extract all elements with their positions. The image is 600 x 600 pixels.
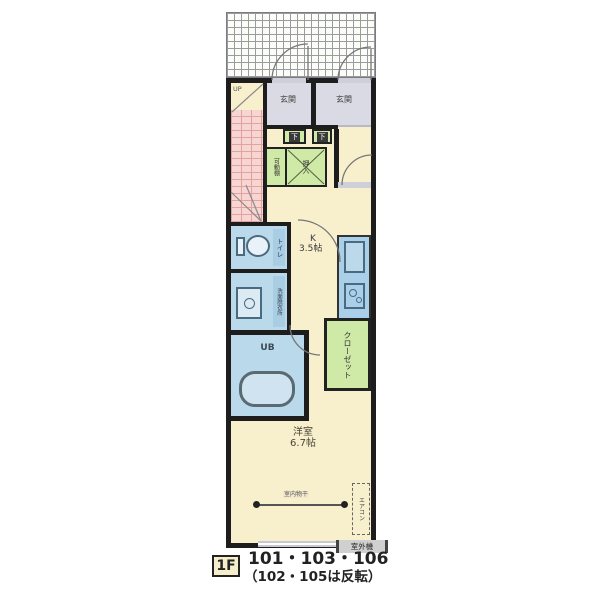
unit-numbers-note: （102・105は反転） (244, 570, 381, 584)
western-room-name: 洋室 (273, 428, 333, 439)
bathtub-icon (239, 371, 295, 407)
closet-label-col1: クロー (342, 331, 353, 355)
entrance-right-threshold (338, 78, 371, 83)
floorplan-canvas: 下 下 可動棚 押入 トイレ 洗面脱衣所 UB クロー ゼット (0, 0, 600, 600)
closet: クロー ゼット (324, 318, 371, 391)
entrance-right-label: 玄関 (322, 96, 366, 104)
porch-grid-area (226, 12, 376, 78)
stove-burner2-icon (356, 297, 362, 303)
laundry-pole-label: 室内物干 (283, 492, 309, 498)
toilet-label: トイレ (273, 229, 285, 266)
washroom: 洗面脱衣所 (231, 273, 287, 330)
shoe-cabinet-1: 下 (283, 129, 306, 144)
window-bottom-line (258, 543, 340, 545)
movable-shelf-label: 可動棚 (267, 149, 287, 185)
laundry-pole-end-left (253, 501, 260, 508)
entrance-right-floor (316, 83, 371, 127)
entrance-left-floor (263, 83, 311, 127)
washbasin-bowl-icon (244, 298, 255, 309)
closet-label-col2: ゼット (342, 355, 353, 379)
unit-bath-label: UB (231, 343, 304, 353)
shoe-cabinet-1-label: 下 (289, 132, 300, 142)
western-room-size: 6.7帖 (273, 439, 333, 450)
shoe-cabinet-2-label: 下 (317, 132, 328, 142)
floor-badge: 1F (212, 555, 240, 577)
wall-ub-right (304, 335, 309, 421)
storage-oshiire: 可動棚 押入 (265, 147, 327, 187)
toilet-tank-icon (236, 237, 245, 256)
laundry-pole-end-right (341, 501, 348, 508)
washbasin-icon (236, 287, 262, 319)
entrance-left-threshold (272, 78, 306, 83)
stairs-up-label: UP (233, 86, 242, 93)
unit-numbers: 101・103・106 (248, 551, 388, 569)
shoe-cabinet-2: 下 (312, 129, 332, 144)
staircase (231, 110, 263, 222)
oshiire-label: 押入 (287, 149, 325, 185)
toilet-bowl-icon (246, 235, 270, 257)
kitchen-door-threshold (338, 182, 371, 188)
kitchen-sink-icon (344, 241, 365, 273)
stove-icon (344, 283, 365, 309)
laundry-pole-line (258, 504, 344, 506)
unit-bath-room: UB (231, 335, 304, 416)
wall-ub-bottom (231, 416, 309, 421)
stove-burner-icon (349, 289, 357, 297)
kitchen-counter (337, 235, 371, 321)
wall-toilet-washroom-right (287, 226, 291, 335)
entrance-left-label: 玄関 (268, 96, 308, 104)
toilet-room: トイレ (231, 226, 287, 269)
kitchen-size-label: 3.5帖 (299, 245, 322, 254)
air-conditioner-box: エアコン (352, 483, 370, 535)
wall-hall-vertical (334, 129, 339, 188)
washroom-label: 洗面脱衣所 (273, 276, 285, 327)
window-bottom (258, 541, 340, 547)
wall-between-entrances (311, 83, 316, 127)
western-room-label: 洋室 6.7帖 (273, 428, 333, 449)
